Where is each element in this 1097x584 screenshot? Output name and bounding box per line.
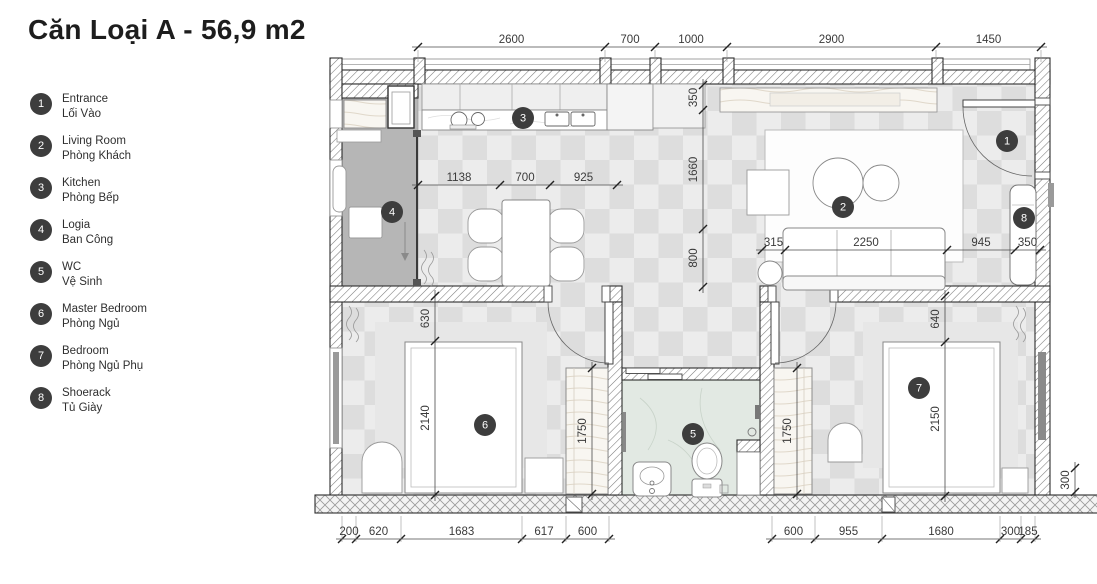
dim-value: 700 bbox=[620, 34, 639, 46]
dining-chair bbox=[468, 209, 504, 243]
dim-value: 945 bbox=[971, 237, 990, 249]
dim-value: 800 bbox=[688, 248, 700, 267]
dining-chair bbox=[468, 247, 504, 281]
wc-sliding-door bbox=[648, 374, 682, 380]
room-badge-number: 7 bbox=[916, 383, 922, 395]
wc-partition bbox=[737, 440, 760, 452]
dim-value: 955 bbox=[839, 526, 858, 538]
second-bench bbox=[1002, 468, 1028, 493]
dim-value: 315 bbox=[764, 237, 783, 249]
room-badge-7: 7 bbox=[908, 377, 930, 399]
dining-chair bbox=[548, 209, 584, 243]
dim-value: 2150 bbox=[930, 406, 942, 432]
room-badge-5: 5 bbox=[682, 423, 704, 445]
dining-table bbox=[502, 200, 550, 286]
dim-value: 1450 bbox=[976, 34, 1002, 46]
wc-sliding-door bbox=[626, 368, 660, 374]
window-pane bbox=[333, 352, 339, 444]
entrance-jamb bbox=[1035, 172, 1050, 179]
room-badge-1: 1 bbox=[996, 130, 1018, 152]
dim-value: 2140 bbox=[420, 405, 432, 431]
dim-value: 2250 bbox=[853, 237, 879, 249]
room-badge-number: 3 bbox=[520, 113, 526, 125]
wall-pier bbox=[414, 58, 425, 84]
cooktop-controls bbox=[450, 125, 476, 129]
dim-value: 350 bbox=[1018, 237, 1037, 249]
logia-shelf bbox=[337, 130, 381, 142]
dim-value: 1680 bbox=[928, 526, 954, 538]
room-badge-2: 2 bbox=[832, 196, 854, 218]
tv-unit bbox=[770, 93, 900, 106]
logia-slider-end bbox=[413, 279, 421, 286]
room-badge-number: 4 bbox=[389, 207, 395, 219]
cooktop-burner bbox=[472, 113, 485, 126]
second-chair bbox=[828, 423, 862, 462]
dim-value: 185 bbox=[1018, 526, 1037, 538]
side-table bbox=[747, 170, 789, 215]
floorplan-page: Căn Loại A - 56,9 m2 1EntranceLối Vào2Li… bbox=[0, 0, 1097, 584]
shoerack bbox=[1010, 185, 1036, 285]
dim-value: 1750 bbox=[782, 418, 794, 444]
wc-sink-basin bbox=[640, 467, 664, 485]
door-jamb bbox=[544, 286, 552, 302]
logia-cabinet bbox=[344, 100, 386, 128]
dim-value: 700 bbox=[515, 172, 534, 184]
ac-unit bbox=[1038, 352, 1046, 440]
towel-bar bbox=[623, 412, 626, 452]
dim-value: 2600 bbox=[499, 34, 525, 46]
dim-value: 1750 bbox=[577, 418, 589, 444]
logia-table bbox=[349, 207, 382, 238]
dim-value: 620 bbox=[369, 526, 388, 538]
mid-wall-left bbox=[330, 286, 550, 302]
room-badge-number: 5 bbox=[690, 429, 696, 441]
dim-value: 1000 bbox=[678, 34, 704, 46]
dim-value: 640 bbox=[930, 309, 942, 328]
room-badge-number: 1 bbox=[1004, 136, 1010, 148]
dim-value: 630 bbox=[420, 309, 432, 328]
room-badge-6: 6 bbox=[474, 414, 496, 436]
logia-slider-end bbox=[413, 130, 421, 137]
entrance-door-leaf bbox=[963, 100, 1035, 107]
room-badge-4: 4 bbox=[381, 201, 403, 223]
room-badge-number: 8 bbox=[1021, 213, 1027, 225]
dim-value: 925 bbox=[574, 172, 593, 184]
dim-line-bottom-right: 6009551680300185 bbox=[766, 516, 1041, 543]
dim-value: 200 bbox=[339, 526, 358, 538]
dim-value: 1138 bbox=[447, 172, 472, 184]
room-badge-3: 3 bbox=[512, 107, 534, 129]
master-door-leaf bbox=[605, 302, 613, 364]
dim-line-bottom-left: 2006201683617600 bbox=[336, 516, 615, 543]
dim-value: 300 bbox=[1001, 526, 1020, 538]
room-badge-number: 2 bbox=[840, 202, 846, 214]
logia-side-window bbox=[330, 100, 342, 128]
room-badge-number: 6 bbox=[482, 420, 488, 432]
dim-value: 600 bbox=[784, 526, 803, 538]
wc-niche bbox=[737, 452, 760, 495]
floorplan-drawing: 2600700100029001450113870092531522509453… bbox=[0, 0, 1097, 584]
dim-value: 1660 bbox=[688, 157, 700, 183]
logia-bench bbox=[333, 166, 346, 212]
kitchen-upper-cabinets bbox=[422, 84, 607, 110]
wall-fixture bbox=[1048, 183, 1054, 207]
sofa-back bbox=[783, 276, 945, 290]
master-chair bbox=[362, 442, 402, 493]
fridge-cabinet bbox=[607, 84, 653, 130]
dim-line-right-side: 300 bbox=[1060, 462, 1079, 498]
coffee-table-small bbox=[863, 165, 899, 201]
door-jamb bbox=[768, 286, 776, 302]
second-door-leaf bbox=[771, 302, 779, 364]
dim-value: 617 bbox=[534, 526, 553, 538]
right-wall bbox=[1035, 58, 1050, 510]
dim-value: 1683 bbox=[449, 526, 475, 538]
dim-value: 2900 bbox=[819, 34, 845, 46]
master-bench bbox=[525, 458, 563, 493]
kitchen-area bbox=[422, 84, 705, 130]
sink-drain bbox=[582, 114, 585, 117]
wall-pier bbox=[932, 58, 943, 84]
room-badge-8: 8 bbox=[1013, 207, 1035, 229]
dim-value: 350 bbox=[688, 88, 700, 107]
dim-value: 300 bbox=[1060, 470, 1072, 489]
wall-pier bbox=[650, 58, 661, 84]
entrance-jamb bbox=[1035, 98, 1050, 105]
toilet-flush bbox=[703, 484, 711, 488]
pouf bbox=[758, 261, 782, 285]
wall-pier bbox=[600, 58, 611, 84]
dim-value: 600 bbox=[578, 526, 597, 538]
dining-chair bbox=[548, 247, 584, 281]
door-jamb bbox=[602, 286, 610, 302]
sink-drain bbox=[556, 114, 559, 117]
shower-mixer bbox=[755, 405, 760, 419]
wall-pier bbox=[723, 58, 734, 84]
